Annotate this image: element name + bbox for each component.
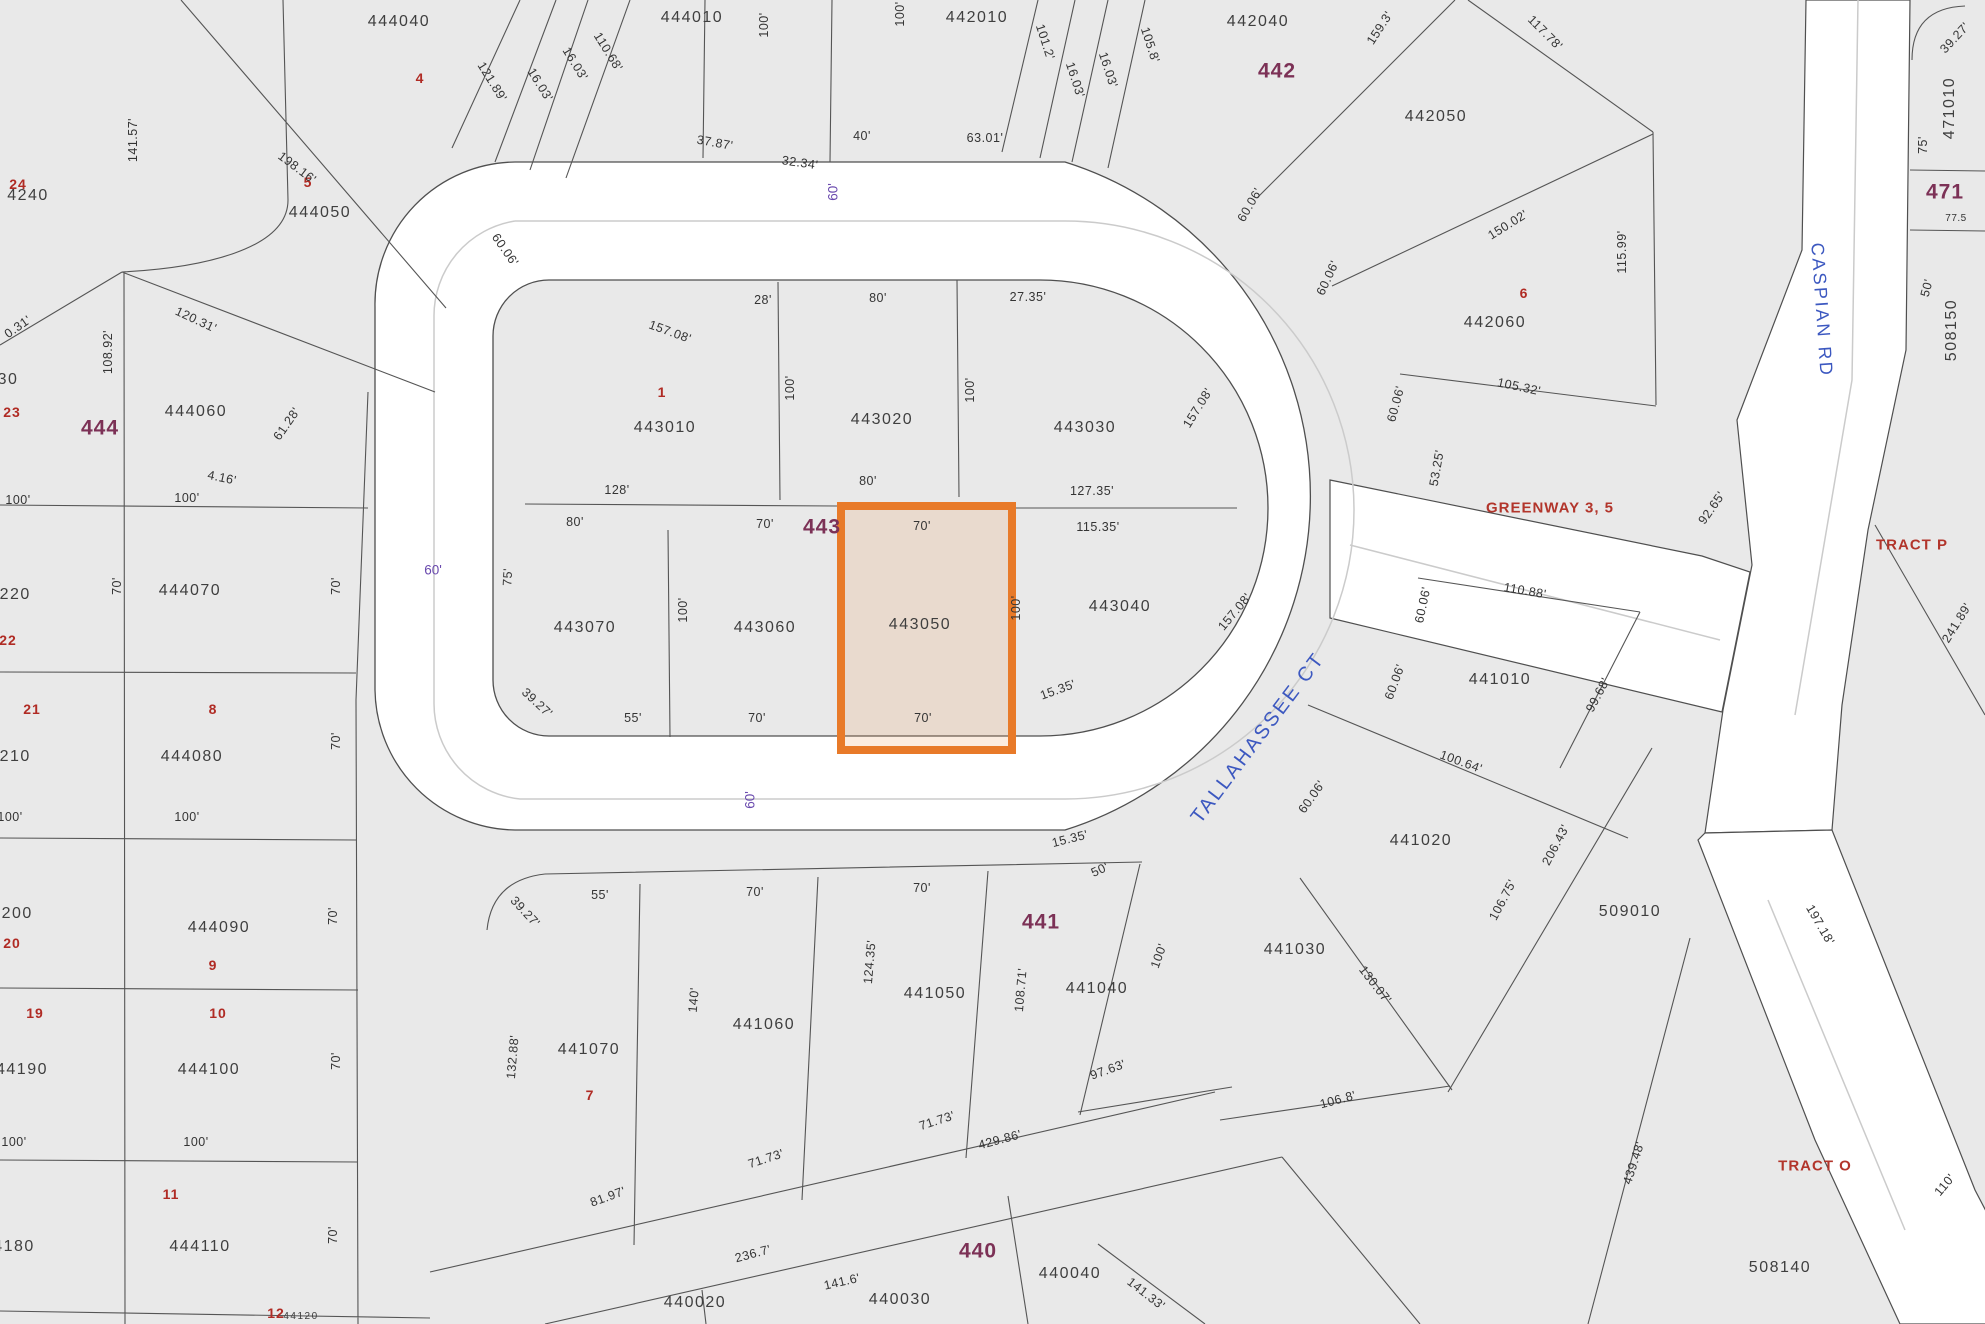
dimension-label-141.57-: 141.57' [127,118,140,162]
parcel-label-443010: 443010 [634,420,696,436]
parcel-label-443050: 443050 [889,617,951,633]
block-number-444: 444 [81,418,119,439]
parcel-label-440030: 440030 [869,1292,931,1308]
dimension-label-100-: 100' [5,494,30,507]
dimension-label-63.01-: 63.01' [967,132,1004,145]
parcel-label-442010: 442010 [946,10,1008,26]
parcel-label-444050: 444050 [289,205,351,221]
parcel-label-442050: 442050 [1405,109,1467,125]
dimension-label-100-: 100' [183,1136,208,1149]
lot-number-1: 1 [658,385,667,399]
dimension-label-77.5: 77.5 [1945,214,1966,224]
lot-number-24: 24 [9,177,27,191]
parcel-label-442060: 442060 [1464,315,1526,331]
dimension-label-100-: 100' [174,492,199,505]
parcel-label-440040: 440040 [1039,1266,1101,1282]
parcel-label-441020: 441020 [1390,833,1452,849]
parcel-label-30: 30 [0,372,18,388]
parcel-label-441050: 441050 [904,986,966,1002]
parcel-label-443020: 443020 [851,412,913,428]
dimension-label-100-: 100' [677,597,690,622]
dimension-label-100-: 100' [964,377,977,402]
parcel-label-441030: 441030 [1264,942,1326,958]
dimension-label-100-: 100' [1010,595,1023,620]
block-number-441: 441 [1022,912,1060,933]
dimension-label-55-: 55' [624,712,642,725]
parcel-label-471010: 471010 [1942,77,1958,139]
lot-number-21: 21 [23,702,41,716]
lot-number-19: 19 [26,1006,44,1020]
dimension-label-70-: 70' [330,732,343,750]
dimension-label-70-: 70' [756,518,774,531]
dimension-label-108.92-: 108.92' [102,330,115,374]
lot-number-20: 20 [3,936,21,950]
parcel-label-441040: 441040 [1066,981,1128,997]
dimension-label-100-: 100' [174,811,199,824]
block-number-442: 442 [1258,61,1296,82]
parcel-label-509010: 509010 [1599,904,1661,920]
dimension-label-55-: 55' [591,889,609,902]
dimension-label-27.35-: 27.35' [1010,291,1047,304]
parcel-label-440020: 440020 [664,1295,726,1311]
map-canvas[interactable]: 4440404440104420104420404420504420604440… [0,0,1985,1324]
dimension-label-70-: 70' [748,712,766,725]
dimension-label-28-: 28' [754,294,772,307]
parcel-label-444040: 444040 [368,14,430,30]
parcel-label-443040: 443040 [1089,599,1151,615]
dimension-label-70-: 70' [111,577,124,595]
lot-number-9: 9 [209,958,218,972]
parcel-label-4210: 4210 [0,749,31,765]
parcel-label-441010: 441010 [1469,672,1531,688]
dimension-label-80-: 80' [869,292,887,305]
parcel-label-4200: 4200 [0,906,33,922]
lot-number-8: 8 [209,702,218,716]
dimension-label-100-: 100' [0,811,23,824]
parcel-label-44190: 44190 [0,1062,48,1078]
dimension-label-70-: 70' [914,712,932,725]
lot-number-6: 6 [1520,286,1529,300]
road-shapes [375,0,1985,1324]
parcel-label-444080: 444080 [161,749,223,765]
block-number-443: 443 [803,517,841,538]
parcel-label-44120: 44120 [283,1312,318,1322]
dimension-label-70-: 70' [327,1226,340,1244]
parcel-label-444070: 444070 [159,583,221,599]
lot-number-22: 22 [0,633,17,647]
dimension-label-100-: 100' [1,1136,26,1149]
dimension-label-70-: 70' [330,1052,343,1070]
parcel-label-444060: 444060 [165,404,227,420]
block-number-440: 440 [959,1241,997,1262]
dimension-label-75-: 75' [501,568,514,586]
dimension-label-100-: 100' [894,1,907,26]
lot-number-4: 4 [416,71,425,85]
dimension-label-100-: 100' [758,12,771,37]
dimension-label-115.35-: 115.35' [1076,521,1119,534]
dimension-label-115.99-: 115.99' [1616,230,1629,273]
dimension-label-140-: 140' [687,987,702,1013]
dimension-label-70-: 70' [913,520,931,533]
road-width-label-60-: 60' [424,563,442,577]
parcel-label-508140: 508140 [1749,1260,1811,1276]
parcel-label-443070: 443070 [554,620,616,636]
parcel-label-4180: 4180 [0,1239,35,1255]
dimension-label-70-: 70' [327,907,340,925]
dimension-label-128-: 128' [604,484,629,497]
parcel-label-441060: 441060 [733,1017,795,1033]
lot-number-12: 12 [267,1306,285,1320]
parcel-label-443060: 443060 [734,620,796,636]
dimension-label-70-: 70' [746,886,764,899]
dimension-label-40-: 40' [853,130,871,143]
parcel-label-444110: 444110 [169,1239,230,1255]
dimension-label-70-: 70' [913,882,931,895]
road-width-label-60-: 60' [743,791,757,809]
parcel-label-444090: 444090 [188,920,250,936]
lot-number-11: 11 [163,1187,180,1201]
tract-label-tract-p: TRACT P [1876,538,1948,553]
parcel-label-443030: 443030 [1054,420,1116,436]
parcel-label-508150: 508150 [1944,299,1960,361]
dimension-label-75-: 75' [1917,136,1930,154]
tract-label-greenway-3-5: GREENWAY 3, 5 [1486,501,1614,516]
dimension-label-80-: 80' [566,516,584,529]
block-number-471: 471 [1926,182,1964,203]
dimension-label-70-: 70' [330,577,343,595]
parcel-label-444010: 444010 [661,10,723,26]
parcel-label-441070: 441070 [558,1042,620,1058]
lot-number-23: 23 [3,405,21,419]
road-width-label-60-: 60' [826,183,840,201]
lot-number-7: 7 [586,1088,595,1102]
dimension-label-127.35-: 127.35' [1070,485,1114,498]
road-caspian-north [1705,0,1910,833]
parcel-label-4220: 4220 [0,587,31,603]
lot-number-10: 10 [209,1006,227,1020]
parcel-label-442040: 442040 [1227,14,1289,30]
dimension-label-80-: 80' [859,475,877,488]
parcel-label-444100: 444100 [178,1062,240,1078]
tract-label-tract-o: TRACT O [1778,1159,1852,1174]
dimension-label-100-: 100' [784,375,797,400]
